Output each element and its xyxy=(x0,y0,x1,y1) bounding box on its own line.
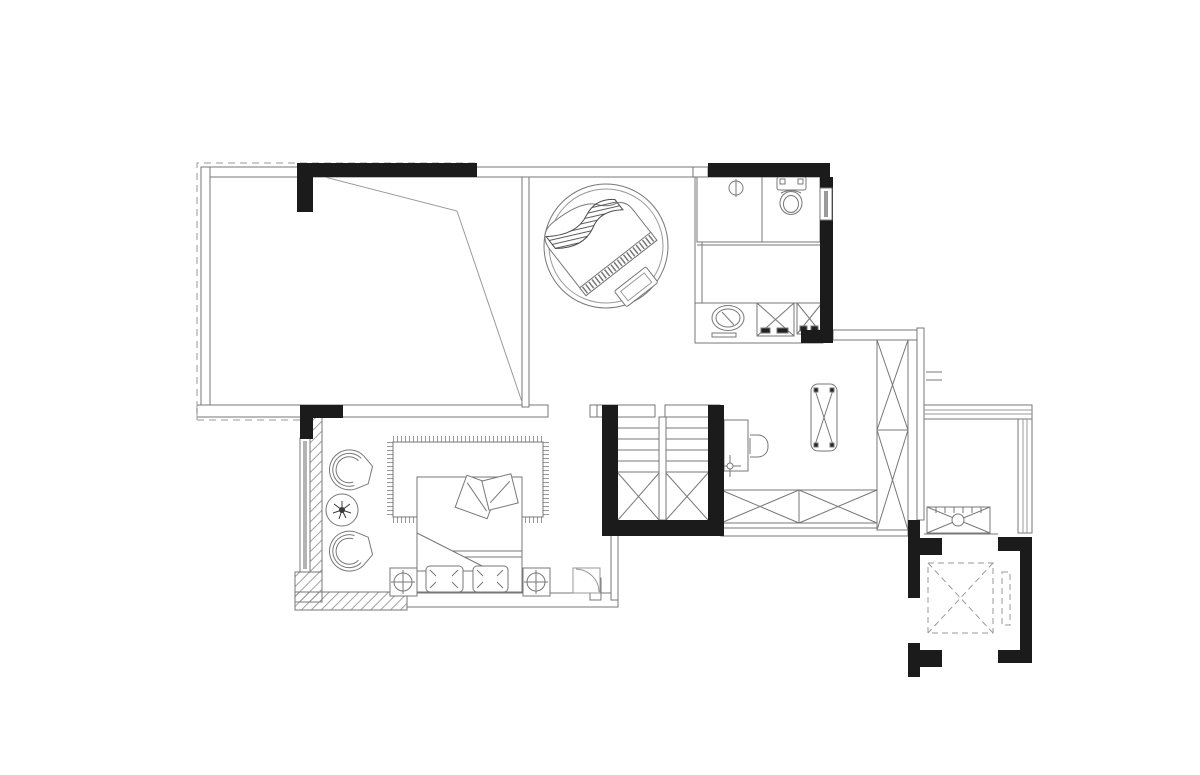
wall-black-elev-arm-bottom xyxy=(920,650,942,667)
wall-black-elev-left-bottom xyxy=(908,643,920,677)
nightstand-left xyxy=(390,568,417,596)
ottoman-bench-icon xyxy=(811,384,837,451)
duct-shaft xyxy=(820,188,832,220)
balcony xyxy=(924,507,998,534)
wall-black-terrace-top xyxy=(297,163,477,177)
nightstand-right xyxy=(523,568,550,596)
wall-study-right xyxy=(917,328,924,520)
duct-pipe xyxy=(824,191,828,217)
wall-bedroom-right xyxy=(611,535,618,600)
dryer-icon xyxy=(797,303,822,334)
wall-black-bedroom-leg xyxy=(300,405,313,439)
wall-black-stair-bottom xyxy=(602,520,724,536)
wall-black-elev-right xyxy=(1020,551,1032,655)
wall-terrace-bottom xyxy=(197,405,548,417)
wall-black-elev-left-top xyxy=(908,520,920,598)
wall-black-terrace-leg xyxy=(297,163,313,212)
desk-chair-icon xyxy=(750,435,768,457)
floor-plan-page xyxy=(0,0,1200,775)
wall-bath-top-left xyxy=(693,167,708,177)
wall-black-elev-right-top xyxy=(998,537,1032,551)
wall-black-stair-right xyxy=(708,405,724,522)
wall-black-stair-left xyxy=(602,405,618,535)
bedroom-window-glass xyxy=(303,441,307,569)
wardrobe-row-icon xyxy=(721,490,877,523)
wall-black-elev-arm-top xyxy=(920,538,942,555)
wall-study-top xyxy=(833,330,924,340)
wall-terrace-left xyxy=(201,167,210,414)
wall-bedroom-left-hatch xyxy=(310,417,322,572)
wall-black-bath-stub xyxy=(801,330,820,343)
floor-plan-drawing xyxy=(0,0,1200,775)
balcony-window-right xyxy=(1018,419,1032,533)
wall-bedroom-bottom xyxy=(407,593,618,607)
stair-divider xyxy=(659,417,666,520)
ac-condenser-icon xyxy=(927,507,990,533)
throw-pillow-2 xyxy=(482,474,518,510)
bedroom-door-swing xyxy=(573,568,600,593)
wardrobe-column-icon xyxy=(877,340,908,530)
desk-icon xyxy=(724,420,748,471)
wall-terrace-right xyxy=(522,177,529,407)
balcony-window-top xyxy=(924,405,1032,419)
wall-black-bath-top xyxy=(708,163,830,177)
double-bed-icon xyxy=(417,474,522,592)
wall-black-elev-right-bottom xyxy=(998,650,1032,663)
washing-machine-icon xyxy=(757,303,794,336)
